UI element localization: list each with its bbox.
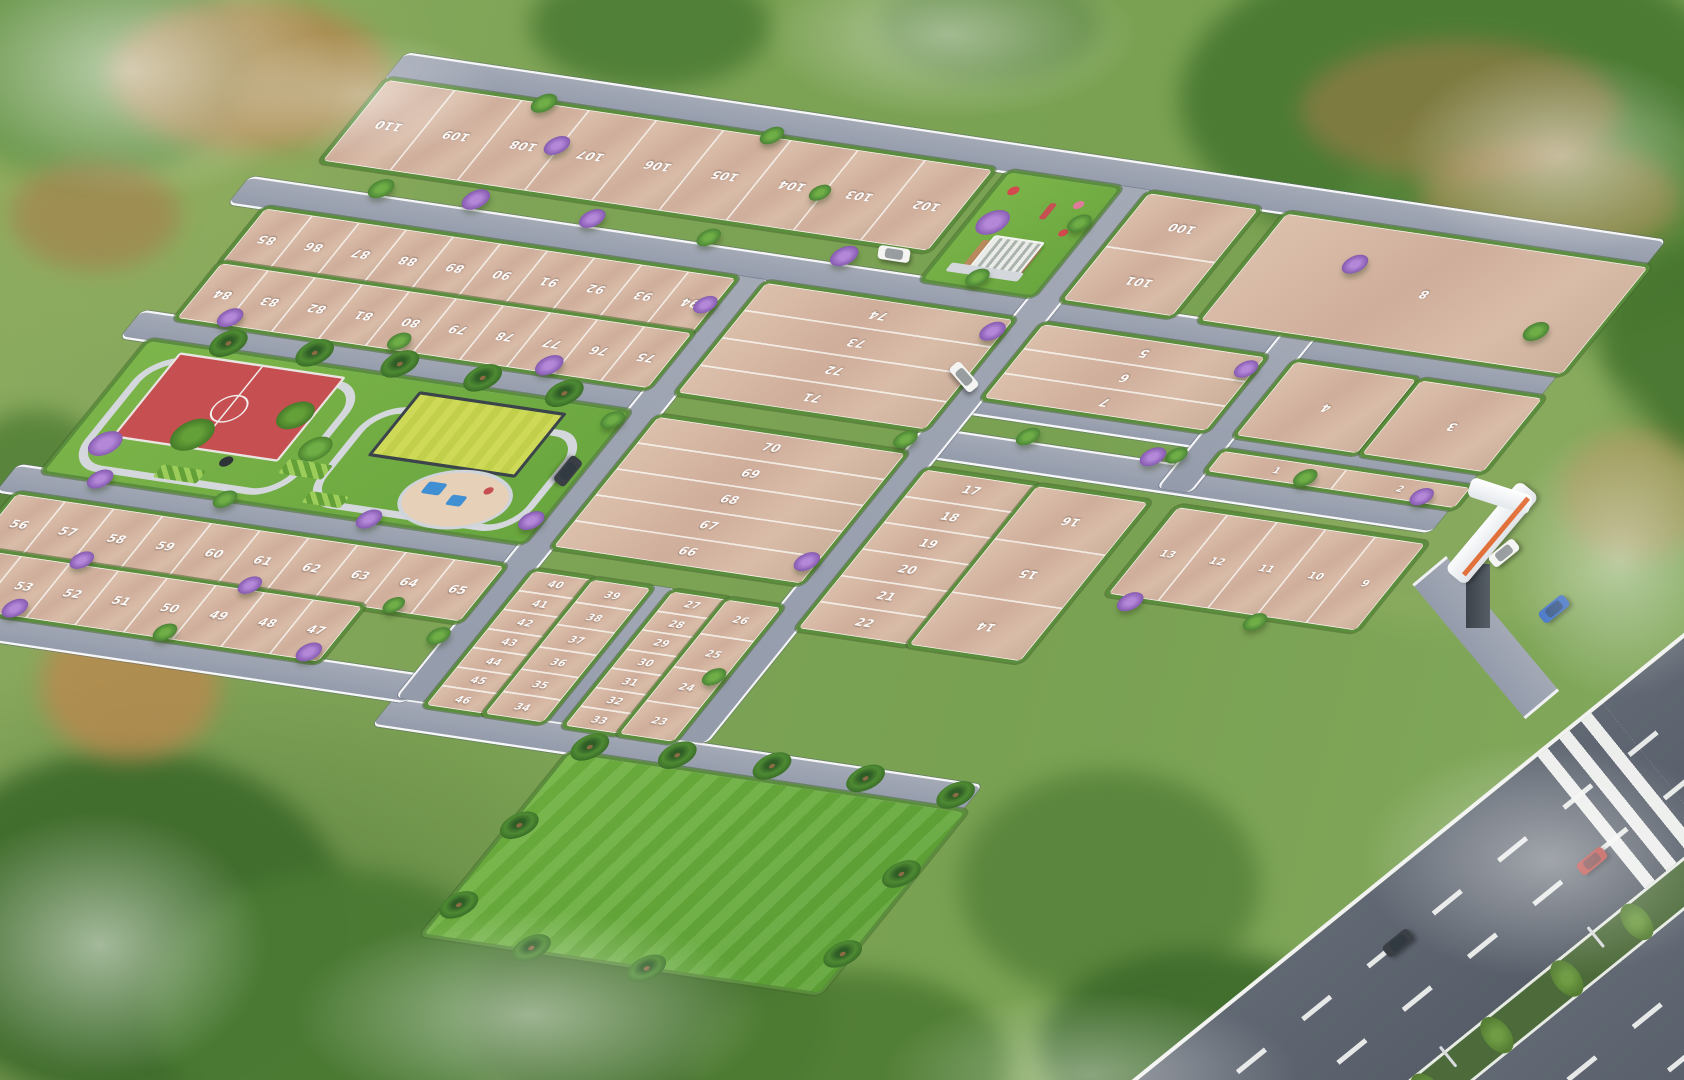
plot-number: 24 (675, 681, 698, 693)
plot-number: 1 (1270, 465, 1284, 475)
plot-number: 89 (442, 260, 468, 274)
plot-number: 72 (821, 363, 847, 377)
plot-number: 27 (681, 599, 704, 611)
plot-number: 7 (1096, 396, 1114, 409)
plot-number: 45 (467, 675, 490, 687)
plot-number: 4 (1317, 401, 1335, 414)
plot-number: 8 (1415, 288, 1433, 301)
plot-number: 104 (775, 178, 810, 193)
flower-bed (1005, 186, 1022, 196)
plot-number: 93 (630, 288, 656, 302)
plot-number: 35 (529, 678, 552, 690)
plot-number: 69 (737, 467, 763, 481)
plot-number: 67 (695, 519, 721, 533)
tree-purple-icon (824, 244, 864, 268)
plot-number: 71 (799, 390, 825, 404)
plot-number: 29 (650, 637, 673, 649)
plot-number: 100 (1164, 220, 1199, 235)
plot-number: 103 (842, 188, 877, 203)
tree-purple-icon (574, 207, 611, 229)
plot-number: 2 (1393, 484, 1407, 494)
plot-number: 53 (10, 580, 36, 594)
plot-number: 14 (973, 619, 999, 633)
plot-number: 31 (619, 676, 642, 688)
plot-number: 40 (544, 579, 567, 591)
vegetation-patch (10, 160, 180, 270)
plot-number: 36 (547, 656, 570, 668)
plot-number: 48 (254, 616, 280, 630)
plot-number: 64 (395, 576, 421, 590)
plot-number: 85 (254, 232, 280, 246)
plot-number: 62 (298, 561, 324, 575)
plot-number: 25 (702, 648, 725, 660)
plot-number: 12 (1206, 555, 1229, 567)
plot-number: 110 (371, 118, 406, 133)
plot-number: 44 (483, 655, 506, 667)
plot-number: 82 (304, 301, 330, 315)
plot-number: 28 (665, 618, 688, 630)
plot-number: 20 (894, 563, 920, 577)
plot-number: 102 (909, 198, 944, 213)
plot-number: 19 (915, 537, 941, 551)
plot-number: 34 (511, 701, 534, 713)
plot-number: 88 (395, 253, 421, 267)
plot-number: 6 (1116, 371, 1134, 384)
plot-number: 91 (536, 274, 562, 288)
plot-number: 42 (513, 617, 536, 629)
plot-number: 73 (843, 335, 869, 349)
plot-number: 37 (565, 634, 588, 646)
plot-number: 10 (1305, 570, 1328, 582)
plot-number: 106 (640, 158, 675, 173)
plot-number: 105 (707, 168, 742, 183)
plot-number: 39 (601, 589, 624, 601)
plot-number: 60 (201, 547, 227, 561)
plot-number: 86 (301, 239, 327, 253)
plot-number: 92 (583, 281, 609, 295)
plot-number: 108 (506, 138, 541, 153)
play-dome-red (481, 487, 495, 495)
plot-number: 49 (205, 609, 231, 623)
plot-number: 59 (152, 540, 178, 554)
plot-number: 21 (873, 590, 899, 604)
plot-number: 46 (452, 694, 475, 706)
plot-number: 51 (108, 594, 134, 608)
plot-number: 109 (439, 128, 474, 143)
plot-number: 52 (59, 587, 85, 601)
plot-number: 63 (347, 569, 373, 583)
plot-number: 33 (588, 714, 611, 726)
plot-number: 16 (1058, 514, 1084, 528)
plot-number: 101 (1121, 274, 1156, 289)
plot-number: 68 (716, 493, 742, 507)
aerial-master-plan-render: 1101091081071061051041031021001018858687… (0, 0, 1684, 1080)
plot-number: 3 (1443, 420, 1461, 433)
plot-number: 77 (539, 336, 565, 350)
plot-number: 79 (445, 322, 471, 336)
plot-number: 38 (583, 611, 606, 623)
plot-number: 22 (851, 616, 877, 630)
red-feature (1038, 203, 1057, 220)
plot-number: 81 (351, 308, 377, 322)
plot-number: 61 (249, 554, 275, 568)
plot-number: 15 (1015, 567, 1041, 581)
plot-number: 47 (303, 623, 329, 637)
plot-number: 107 (573, 148, 608, 163)
plot-number: 9 (1358, 578, 1374, 589)
plot-number: 11 (1255, 563, 1278, 575)
plot-number: 17 (958, 484, 984, 498)
plot-number: 30 (634, 657, 657, 669)
plot-number: 83 (257, 294, 283, 308)
plot-number: 58 (103, 532, 129, 546)
plot-number: 80 (398, 315, 424, 329)
plot-number: 76 (586, 343, 612, 357)
plot-number: 41 (529, 598, 552, 610)
plot-number: 18 (936, 511, 962, 525)
plot-number: 70 (758, 441, 784, 455)
plot-number: 43 (498, 636, 521, 648)
plot-number: 78 (492, 329, 518, 343)
plot-number: 57 (54, 525, 80, 539)
plot-number: 13 (1156, 548, 1179, 560)
plot-number: 23 (648, 715, 671, 727)
plot-number: 5 (1135, 347, 1153, 360)
plot-number: 90 (489, 267, 515, 281)
plot-number: 50 (156, 602, 182, 616)
garden-tree-purple (969, 208, 1017, 237)
plot-number: 84 (210, 287, 236, 301)
climber-blue (445, 494, 468, 506)
plot-number: 66 (674, 545, 700, 559)
plot-number: 26 (729, 614, 752, 626)
tree-green-icon (692, 227, 726, 247)
tree-purple-icon (456, 188, 496, 212)
plot-number: 65 (444, 583, 470, 597)
plot-number: 74 (865, 308, 891, 322)
plot-number: 56 (6, 518, 32, 532)
plot-number: 87 (348, 246, 374, 260)
flower-bed (1071, 200, 1087, 209)
plot-number: 32 (604, 695, 627, 707)
plot-number: 75 (633, 350, 659, 364)
slide-blue (420, 481, 448, 495)
